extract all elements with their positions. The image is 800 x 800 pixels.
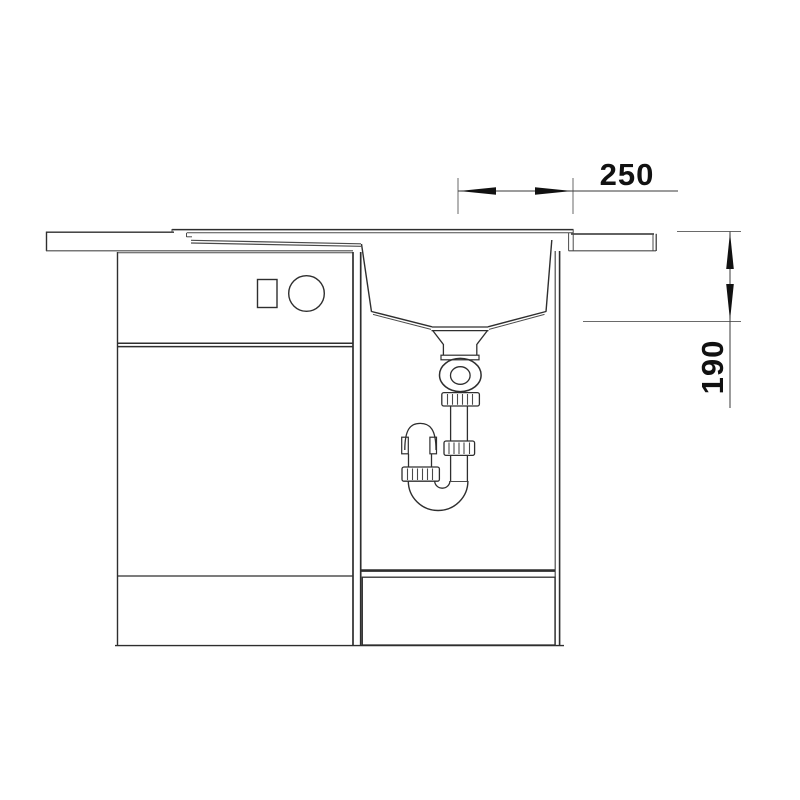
arrow-up-icon xyxy=(726,233,734,270)
u-bend-inner xyxy=(435,481,450,488)
control-button-square xyxy=(258,280,278,308)
drawing-canvas: 250 190 xyxy=(0,0,800,800)
basin-bottom-left-inner xyxy=(373,314,431,329)
cabinet-right xyxy=(361,251,560,646)
siphon-swivel-ring-inner xyxy=(451,367,471,385)
siphon-swivel-ring-outer xyxy=(440,358,482,391)
coupling-nut-3-ribs xyxy=(408,469,433,481)
drain-assembly xyxy=(402,327,489,511)
cabinet-left xyxy=(115,252,564,646)
dimension-depth: 190 xyxy=(583,232,741,409)
coupling-nut-2-ribs xyxy=(449,443,470,455)
arrow-left-icon xyxy=(459,187,496,195)
dimension-width-label: 250 xyxy=(600,157,655,192)
drain-funnel-left xyxy=(433,331,443,345)
plinth-panel xyxy=(362,577,555,645)
arrow-right-icon xyxy=(535,187,572,195)
arrow-down-icon xyxy=(726,284,734,321)
basin-bottom-right-inner xyxy=(489,314,545,329)
coupling-nut-1-ribs xyxy=(448,394,473,405)
technical-drawing: 250 190 xyxy=(0,0,800,800)
basin-bottom-left xyxy=(372,312,433,327)
sink xyxy=(172,229,574,329)
dimension-width: 250 xyxy=(458,157,678,214)
u-bend-outer xyxy=(408,481,468,511)
control-knob-circle xyxy=(289,276,325,312)
countertop-right xyxy=(569,234,657,251)
dimension-depth-label: 190 xyxy=(695,340,730,395)
basin-bottom-right xyxy=(488,312,546,327)
countertop-left xyxy=(46,232,353,251)
basin-wall-left xyxy=(362,244,372,312)
drain-funnel-right xyxy=(477,331,487,345)
basin-wall-right xyxy=(546,240,552,312)
